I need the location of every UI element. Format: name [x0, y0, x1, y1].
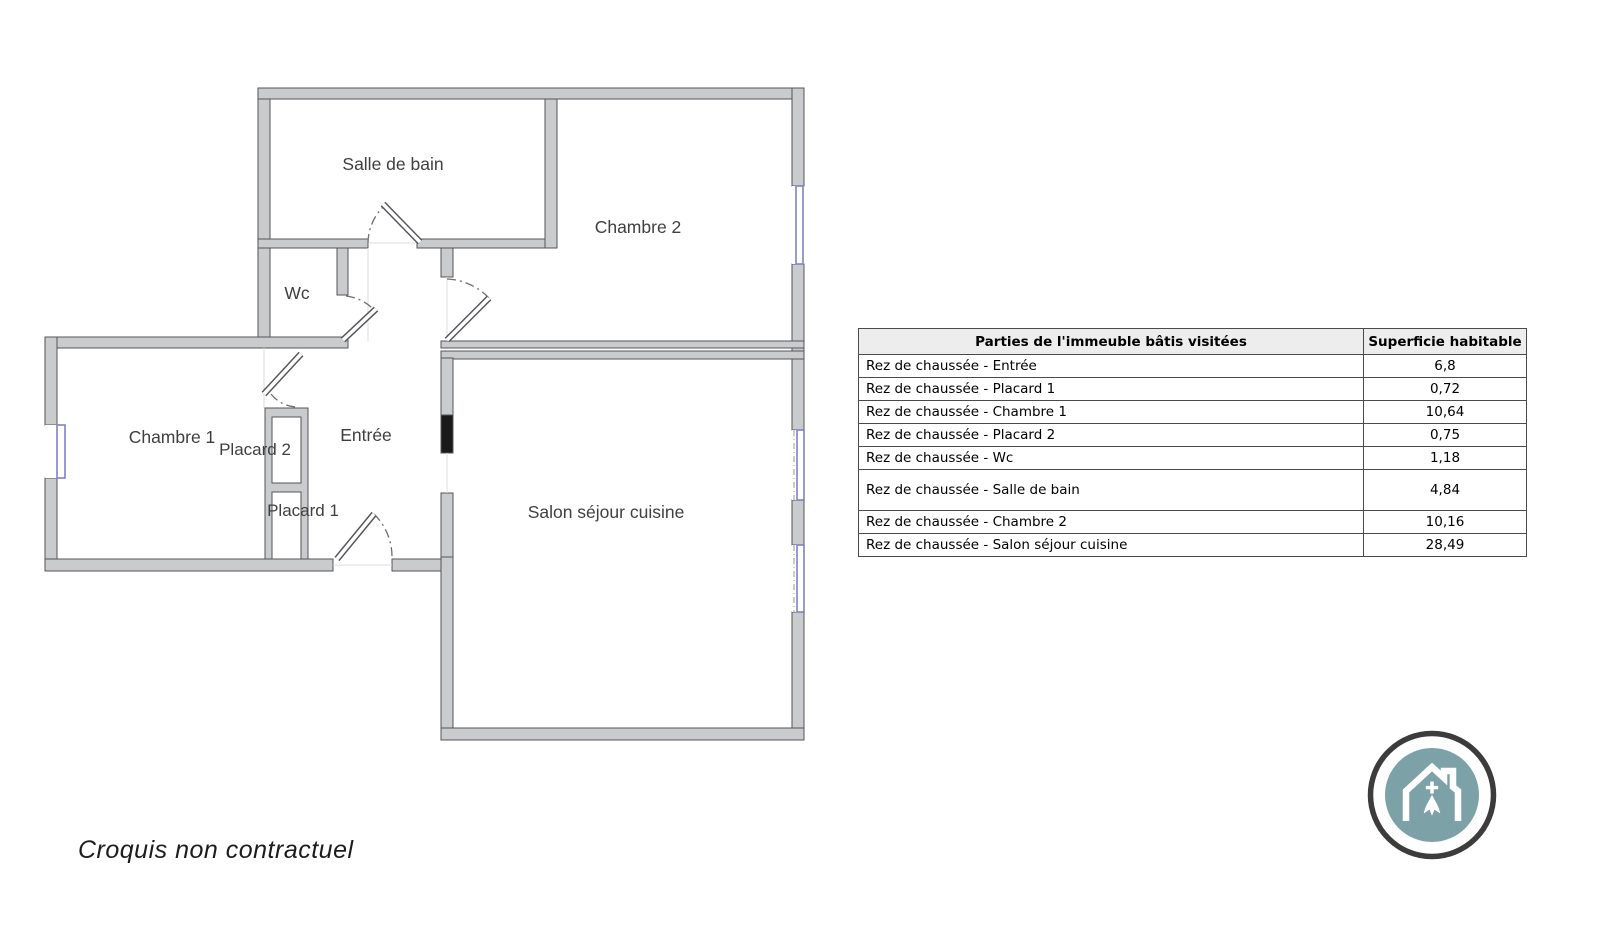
- room-cell: Rez de chaussée - Salon séjour cuisine: [859, 534, 1364, 557]
- room-cell: Rez de chaussée - Placard 2: [859, 424, 1364, 447]
- table-row: Rez de chaussée - Placard 1 0,72: [859, 378, 1527, 401]
- door-salle-de-bain: [368, 204, 420, 243]
- window-chambre2: [792, 186, 804, 264]
- room-label-chambre-1: Chambre 1: [129, 427, 216, 447]
- area-cell: 1,18: [1364, 447, 1527, 470]
- table-header-superficie: Superficie habitable: [1364, 329, 1527, 355]
- area-cell: 28,49: [1364, 534, 1527, 557]
- area-cell: 10,16: [1364, 511, 1527, 534]
- window-chambre1: [45, 425, 65, 478]
- area-cell: 0,72: [1364, 378, 1527, 401]
- floor-plan: Salle de bain Chambre 2 Wc Chambre 1 Pla…: [35, 78, 815, 750]
- room-label-entree: Entrée: [340, 425, 392, 445]
- table-row: Rez de chaussée - Placard 2 0,75: [859, 424, 1527, 447]
- table-row: Rez de chaussée - Salle de bain 4,84: [859, 470, 1527, 511]
- door-chambre1: [264, 354, 301, 407]
- room-cell: Rez de chaussée - Wc: [859, 447, 1364, 470]
- room-label-chambre-2: Chambre 2: [595, 217, 682, 237]
- room-cell: Rez de chaussée - Chambre 1: [859, 401, 1364, 424]
- table-row: Rez de chaussée - Chambre 2 10,16: [859, 511, 1527, 534]
- area-cell: 4,84: [1364, 470, 1527, 511]
- door-chambre2: [447, 279, 489, 340]
- room-cell: Rez de chaussée - Salle de bain: [859, 470, 1364, 511]
- table-row: Rez de chaussée - Wc 1,18: [859, 447, 1527, 470]
- table-row: Rez de chaussée - Chambre 1 10,64: [859, 401, 1527, 424]
- room-cell: Rez de chaussée - Entrée: [859, 355, 1364, 378]
- area-cell: 6,8: [1364, 355, 1527, 378]
- room-label-salle-de-bain: Salle de bain: [342, 154, 443, 174]
- agency-logo: [1366, 729, 1498, 861]
- logo-badge: [1371, 734, 1494, 857]
- window-salon-1: [792, 430, 804, 500]
- surface-table: Parties de l'immeuble bâtis visitées Sup…: [858, 328, 1527, 557]
- entry-door-closed: [441, 415, 453, 453]
- room-label-placard-2: Placard 2: [219, 440, 291, 459]
- walls: [45, 88, 804, 740]
- table-header-row: Parties de l'immeuble bâtis visitées Sup…: [859, 329, 1527, 355]
- area-cell: 0,75: [1364, 424, 1527, 447]
- area-cell: 10,64: [1364, 401, 1527, 424]
- room-label-placard-1: Placard 1: [267, 501, 339, 520]
- table-header-parties: Parties de l'immeuble bâtis visitées: [859, 329, 1364, 355]
- disclaimer-note: Croquis non contractuel: [78, 836, 354, 865]
- window-salon-2: [792, 545, 804, 612]
- door-front: [337, 514, 392, 559]
- table-row: Rez de chaussée - Entrée 6,8: [859, 355, 1527, 378]
- windows: [45, 186, 804, 612]
- room-cell: Rez de chaussée - Chambre 2: [859, 511, 1364, 534]
- room-cell: Rez de chaussée - Placard 1: [859, 378, 1364, 401]
- door-wc: [343, 296, 376, 340]
- room-label-salon: Salon séjour cuisine: [528, 502, 685, 522]
- table-row: Rez de chaussée - Salon séjour cuisine 2…: [859, 534, 1527, 557]
- room-label-wc: Wc: [284, 283, 310, 303]
